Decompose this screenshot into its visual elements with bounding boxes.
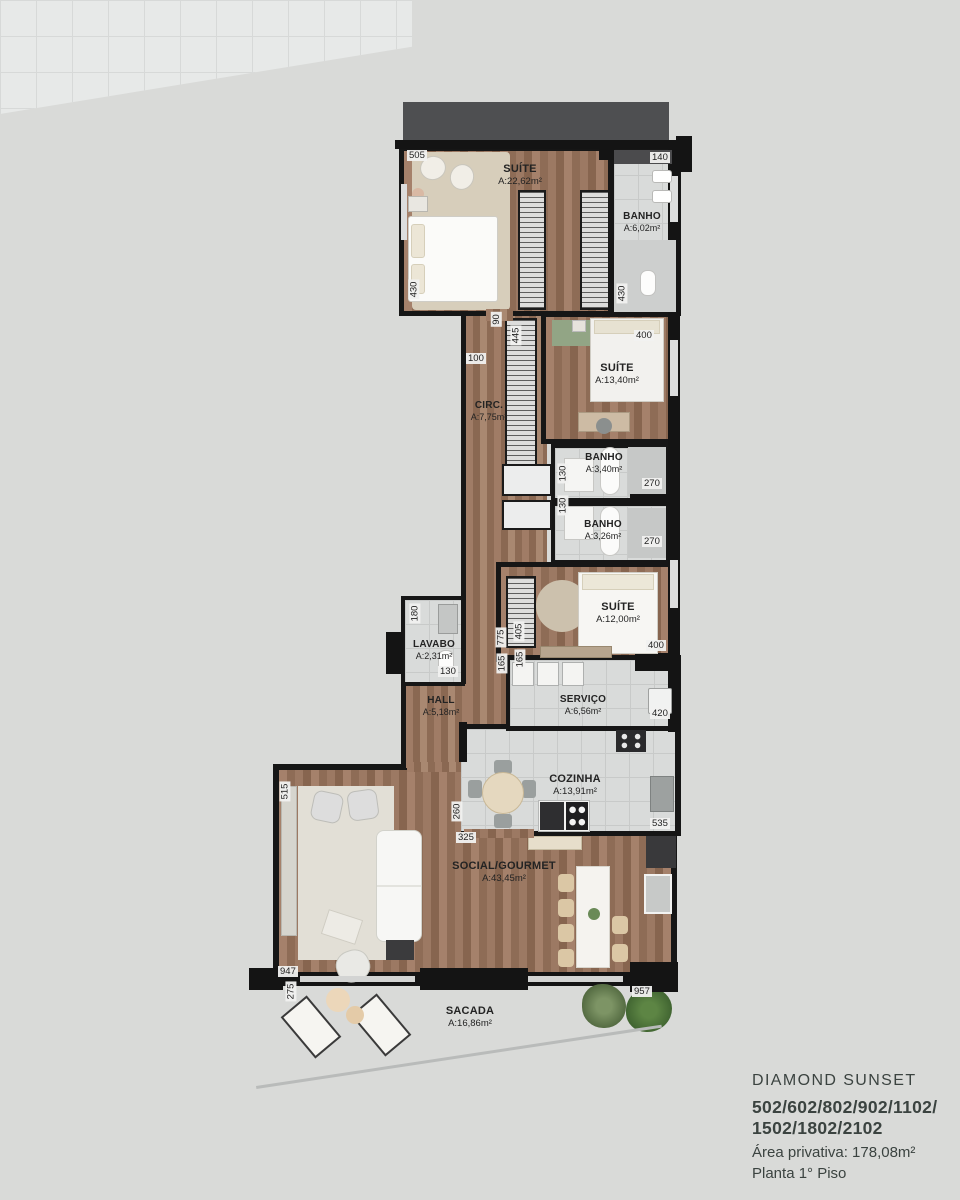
dimension-label: 405 [513,622,524,642]
dimension-label: 400 [646,640,666,651]
room-name: HALL [423,695,460,706]
chair [558,924,574,942]
shower-area [628,508,666,558]
floor-label: Planta 1° Piso [752,1165,937,1182]
niche-banhos [630,494,672,506]
dimension-label: 535 [650,818,670,829]
room-name: SUÍTE [498,163,542,175]
room-area: A:6,02m² [623,223,661,233]
dimension-label: 180 [409,604,420,624]
dimension-label: 430 [616,284,627,304]
dimension-label: 90 [491,312,502,327]
refrigerator [650,776,674,812]
room-area: A:3,26m² [584,531,622,541]
linen-closet [502,500,552,530]
room-area: A:7,75m² [471,412,508,422]
grill [646,836,676,868]
door-frame-banho-master [599,142,615,160]
dimension-label: 505 [407,150,427,161]
dimension-label: 420 [650,708,670,719]
armchair [346,788,380,822]
chair [522,780,536,798]
chair [558,874,574,892]
room-area: A:13,91m² [549,786,601,797]
sink [652,170,672,183]
dimension-label: 445 [510,326,521,346]
dimension-label: 325 [456,832,476,843]
pillow [411,224,425,258]
toilet [640,270,656,296]
side-table [386,940,414,960]
window-right-2 [670,340,678,396]
dimension-label: 270 [642,478,662,489]
plant [582,984,626,1028]
dimension-label: 775 [495,628,506,648]
label-banho-3: BANHO A:3,26m² [584,519,622,541]
room-area: A:43,45m² [452,873,556,884]
chair [558,899,574,917]
project-title: DIAMOND SUNSET [752,1072,937,1090]
dimension-label: 260 [451,802,462,822]
right-wall [668,146,680,732]
dimension-label: 140 [650,152,670,163]
wall-stub-bottom-1 [420,968,528,990]
top-wall [395,140,687,149]
dimension-label: 275 [285,982,296,1002]
room-name: LAVABO [413,639,455,650]
dimension-label: 957 [632,986,652,997]
dimension-label: 165 [514,650,525,670]
sideboard [281,786,297,936]
private-area: Área privativa: 178,08m² [752,1144,937,1161]
label-banho-master: BANHO A:6,02m² [623,211,661,233]
room-sacada [0,0,412,114]
cabinet [562,662,584,686]
sink [438,604,458,634]
room-area: A:13,40m² [595,375,639,386]
room-name: COZINHA [549,773,601,785]
breakfast-table [482,772,524,814]
header-band [403,102,669,144]
passage-hall-social [407,762,461,772]
dimension-label: 270 [642,536,662,547]
room-area: A:2,31m² [413,651,455,661]
dimension-label: 100 [466,353,486,364]
sofa [376,830,422,942]
sun-lounger [351,993,412,1056]
nightstand [408,196,428,212]
round-table [326,988,350,1012]
window-left-suite [401,184,407,240]
wall-cozinha-left [459,722,467,762]
chair [494,814,512,828]
wall-block-servico [635,653,677,671]
label-sacada: SACADA A:16,86m² [446,1005,494,1029]
sink [652,190,672,203]
cabinet [537,662,559,686]
room-name: BANHO [584,519,622,530]
dimension-label: 515 [279,782,290,802]
unit-numbers-line2: 1502/1802/2102 [752,1118,937,1139]
desk-chair [596,418,612,434]
dimension-label: 400 [634,330,654,341]
glass-door-2 [528,976,623,982]
room-name: SACADA [446,1005,494,1017]
dimension-label: 430 [408,280,419,300]
unit-numbers-line1: 502/602/802/902/1102/ [752,1097,937,1118]
label-suite-master: SUÍTE A:22,62m² [498,163,542,187]
room-name: SOCIAL/GOURMET [452,860,556,872]
room-name: BANHO [585,452,623,463]
stove [616,730,646,752]
dimension-label: 130 [438,666,458,677]
dimension-label: 165 [496,654,507,674]
wall-stub-top-right [676,136,692,172]
shower-area [628,447,666,497]
linen-closet [502,464,552,496]
room-name: SUÍTE [595,362,639,374]
label-hall: HALL A:5,18m² [423,695,460,717]
label-suite-3: SUÍTE A:12,00m² [596,601,640,625]
island-cabinet [540,802,564,830]
room-name: SUÍTE [596,601,640,613]
room-area: A:3,40m² [585,464,623,474]
chair [612,916,628,934]
label-servico: SERVIÇO A:6,56m² [560,694,606,716]
floor-plan: SUÍTE A:22,62m² BANHO A:6,02m² CIRC. A:7… [0,0,960,1200]
dresser [540,646,612,658]
label-banho-2: BANHO A:3,40m² [585,452,623,474]
room-name: SERVIÇO [560,694,606,705]
gourmet-sink-cabinet [644,874,672,914]
round-table [346,1006,364,1024]
label-social-gourmet: SOCIAL/GOURMET A:43,45m² [452,860,556,884]
chair [468,780,482,798]
room-area: A:22,62m² [498,176,542,187]
room-area: A:16,86m² [446,1018,494,1029]
room-name: CIRC. [471,400,508,411]
chair [612,944,628,962]
dimension-label: 130 [557,496,568,516]
glass-door-1 [300,976,415,982]
plan-legend: DIAMOND SUNSET 502/602/802/902/1102/ 150… [752,1072,937,1182]
label-suite-2: SUÍTE A:13,40m² [595,362,639,386]
room-area: A:12,00m² [596,614,640,625]
table-plant [588,908,600,920]
label-circ: CIRC. A:7,75m² [471,400,508,422]
wardrobe [518,190,546,310]
room-name: BANHO [623,211,661,222]
shaft-lavabo [386,632,403,674]
chair [558,949,574,967]
dimension-label: 130 [557,464,568,484]
label-cozinha: COZINHA A:13,91m² [549,773,601,797]
room-area: A:6,56m² [560,706,606,716]
room-area: A:5,18m² [423,707,460,717]
window-right-3 [670,560,678,608]
console [528,836,582,850]
label-lavabo: LAVABO A:2,31m² [413,639,455,661]
nightstand [572,320,586,332]
cooktop [566,802,588,830]
dimension-label: 947 [278,966,298,977]
wardrobe [580,190,610,310]
pillow [582,574,654,590]
